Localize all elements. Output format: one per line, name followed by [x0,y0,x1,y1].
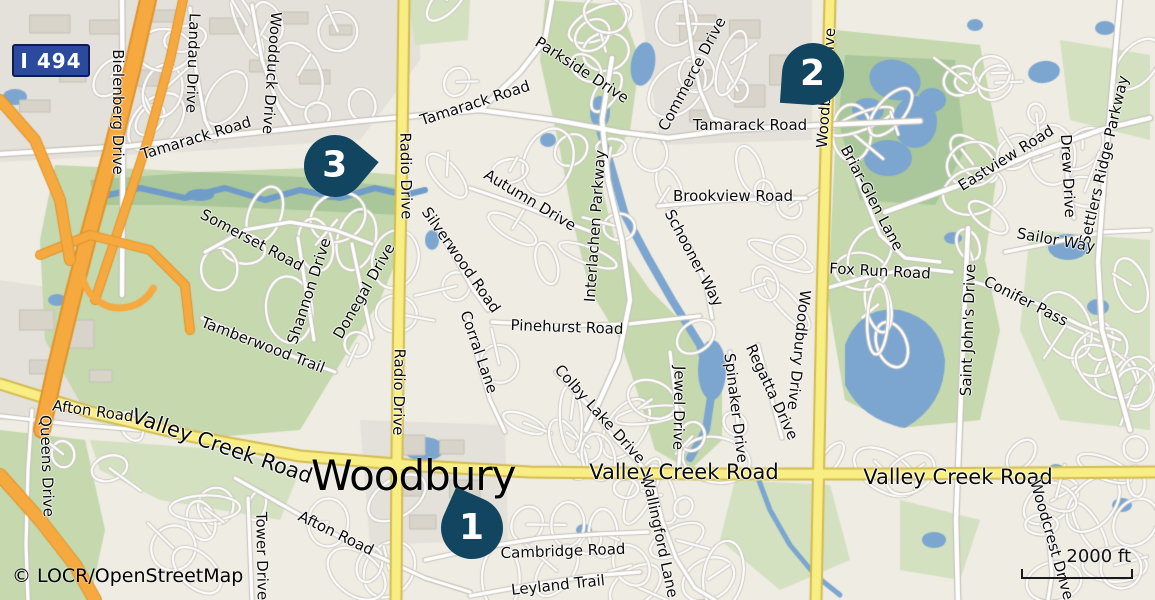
street-label: Tower Drive [252,512,272,600]
map-canvas [0,0,1155,600]
street-label: Valley Creek Road [589,460,779,484]
street-label: Brookview Road [673,187,793,205]
highway-shield-i494: I 494 [12,44,90,77]
marker-number: 1 [459,510,484,546]
map-viewport[interactable]: Bielenberg Drive Landau Drive Woodduck D… [0,0,1155,600]
street-label: Jewel Drive [669,366,688,450]
street-label: Tamarack Road [693,116,807,134]
street-label: Queens Drive [36,415,58,517]
marker-number: 3 [322,148,347,184]
street-label: Valley Creek Road [863,465,1053,489]
street-label: Radio Drive [389,348,409,435]
street-label: Landau Drive [182,13,203,114]
scale-bar-line [1021,569,1133,579]
scale-label: 2000 ft [1021,546,1133,567]
street-label: Radio Drive [396,132,416,219]
scale-bar: 2000 ft [1021,546,1133,579]
city-label-woodbury: Woodbury [311,451,516,500]
street-label: Bielenberg Drive [109,49,127,175]
map-attribution: © LOCR/OpenStreetMap [12,565,243,587]
marker-number: 2 [800,56,825,92]
